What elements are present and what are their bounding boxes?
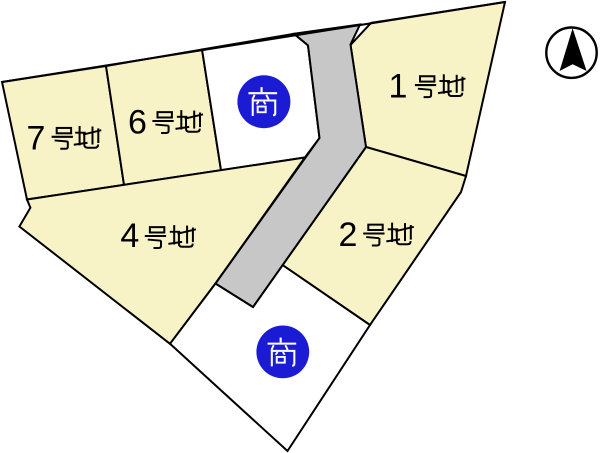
svg-text:7: 7 — [26, 119, 45, 157]
svg-text:2: 2 — [338, 216, 357, 254]
svg-text:6: 6 — [128, 103, 147, 141]
svg-text:4: 4 — [120, 217, 139, 255]
svg-text:1: 1 — [389, 68, 408, 106]
